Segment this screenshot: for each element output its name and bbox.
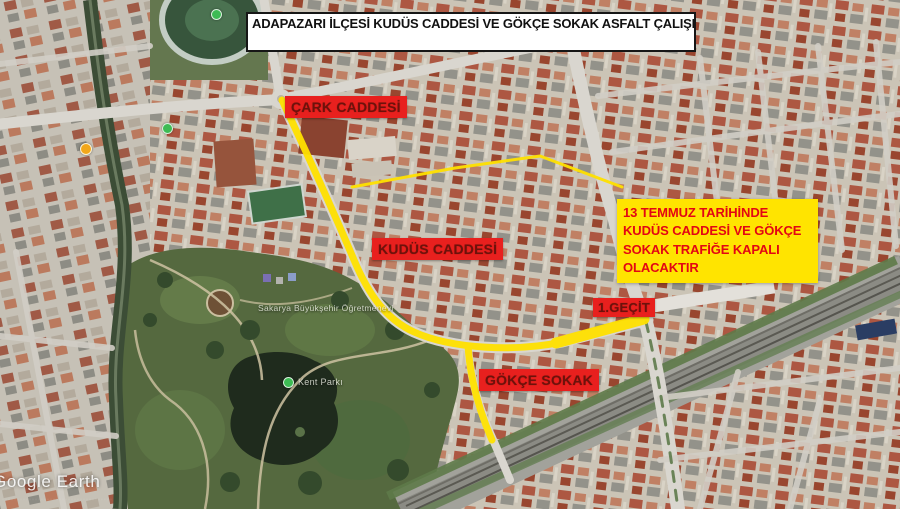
street-label-gokce-sokak: GÖKÇE SOKAK <box>479 369 599 391</box>
sports-pitch <box>248 184 306 223</box>
poi-pin-icon <box>80 143 92 155</box>
poi-label-kent-park: Kent Parkı <box>298 377 343 387</box>
poi-label-ogretmenevi: Sakarya Büyükşehir Öğretmenevi <box>258 303 394 313</box>
map-attribution-strip: ····································· <box>2 497 252 505</box>
poi-pin-icon <box>162 123 173 134</box>
poi-pin-icon <box>283 377 294 388</box>
street-label-1-gecit: 1.GEÇİT <box>593 298 655 317</box>
google-earth-watermark: Google Earth <box>0 472 100 492</box>
map-annotation-screenshot: Sakarya Büyükşehir Öğretmenevi Kent Park… <box>0 0 900 509</box>
poi-pin-icon <box>211 9 222 20</box>
page-title: ADAPAZARI İLÇESİ KUDÜS CADDESİ VE GÖKÇE … <box>246 12 696 52</box>
street-label-cark-caddesi: ÇARK CADDESİ <box>285 96 407 118</box>
street-label-kudus-caddesi: KUDÜS CADDESİ <box>372 238 503 260</box>
closure-notice: 13 TEMMUZ TARİHİNDE KUDÜS CADDESİ VE GÖK… <box>617 199 818 283</box>
park-lake <box>228 352 338 465</box>
